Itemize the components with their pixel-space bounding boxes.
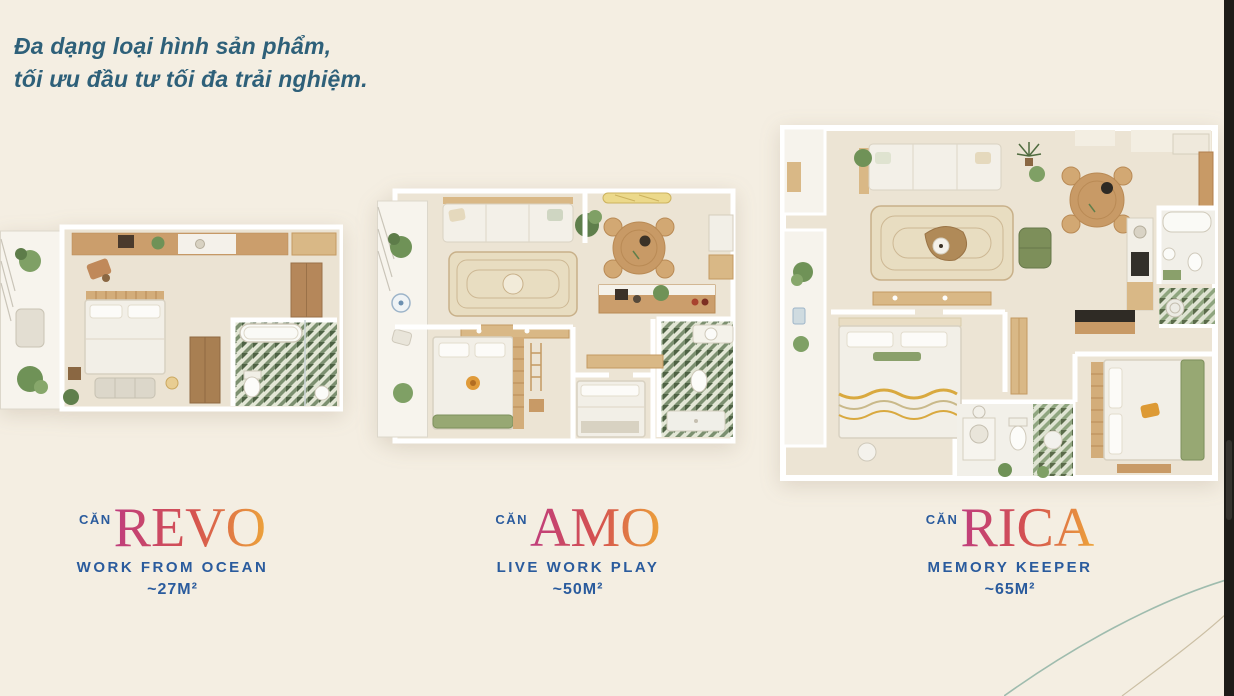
rica-bathroom-main (957, 404, 1073, 478)
amo-floorplan-image (377, 185, 740, 448)
unit-name-rica: RICA (960, 503, 1094, 555)
rica-floorplan-image (775, 122, 1224, 487)
revo-balcony (1, 231, 62, 409)
amo-kitchen-counter (599, 285, 715, 313)
revo-kitchen-counter (72, 233, 336, 255)
rica-bathroom-ensuite (1159, 208, 1215, 326)
unit-area: ~65M² (800, 581, 1220, 599)
unit-prefix-label: CĂN (926, 512, 959, 527)
unit-name-row: CĂN REVO (0, 503, 345, 555)
unit-prefix-label: CĂN (79, 512, 112, 527)
amo-balcony (378, 201, 428, 437)
unit-card-rica: CĂN RICA MEMORY KEEPER ~65M² (800, 503, 1220, 599)
window-edge-bar (1224, 0, 1234, 696)
unit-tagline: LIVE WORK PLAY (392, 559, 764, 576)
unit-tagline: MEMORY KEEPER (800, 559, 1220, 576)
slide-canvas: Đa dạng loại hình sản phẩm, tối ưu đầu t… (0, 0, 1234, 696)
unit-area: ~27M² (0, 581, 345, 599)
page-title: Đa dạng loại hình sản phẩm, tối ưu đầu t… (14, 30, 368, 95)
unit-tagline: WORK FROM OCEAN (0, 559, 345, 576)
unit-name-row: CĂN RICA (800, 503, 1220, 555)
unit-name-amo: AMO (530, 503, 661, 555)
revo-floorplan-image (0, 221, 343, 413)
unit-card-amo: CĂN AMO LIVE WORK PLAY ~50M² (392, 503, 764, 599)
unit-name-row: CĂN AMO (392, 503, 764, 555)
page-title-line2: tối ưu đầu tư tối đa trải nghiệm. (14, 63, 368, 96)
revo-dresser (190, 337, 220, 403)
rica-balcony (783, 128, 825, 446)
revo-wardrobe (291, 263, 322, 317)
scrollbar-thumb[interactable] (1226, 440, 1232, 520)
amo-bathroom (659, 319, 733, 437)
unit-area: ~50M² (392, 581, 764, 599)
revo-bathroom (233, 320, 337, 406)
rica-second-bedroom (1091, 360, 1204, 473)
page-title-line1: Đa dạng loại hình sản phẩm, (14, 30, 368, 63)
unit-prefix-label: CĂN (495, 512, 528, 527)
unit-name-revo: REVO (114, 503, 266, 555)
unit-card-revo: CĂN REVO WORK FROM OCEAN ~27M² (0, 503, 345, 599)
